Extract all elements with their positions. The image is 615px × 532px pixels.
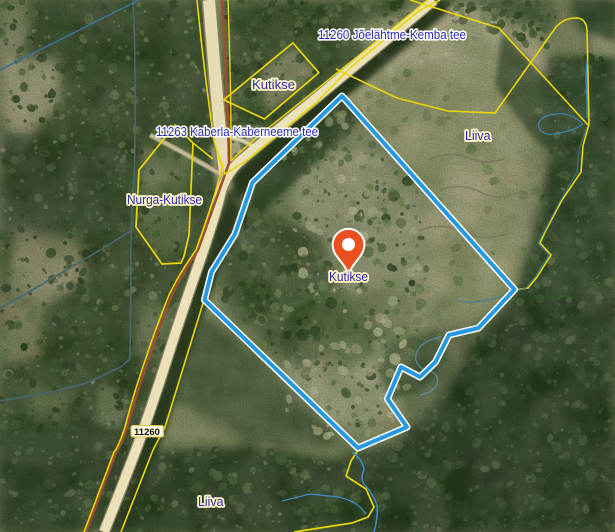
svg-text:Liiva: Liiva [465, 128, 491, 143]
svg-text:Nurga-Kutikse: Nurga-Kutikse [127, 192, 202, 207]
svg-text:Kutikse: Kutikse [252, 77, 295, 92]
svg-text:11263 Kaberla-Kaberneeme tee: 11263 Kaberla-Kaberneeme tee [156, 124, 318, 139]
svg-text:11260: 11260 [134, 427, 160, 438]
svg-text:Liiva: Liiva [198, 494, 224, 509]
svg-text:11260 Jõelähtme-Kemba tee: 11260 Jõelähtme-Kemba tee [318, 27, 466, 42]
svg-text:Kutikse: Kutikse [329, 269, 368, 284]
